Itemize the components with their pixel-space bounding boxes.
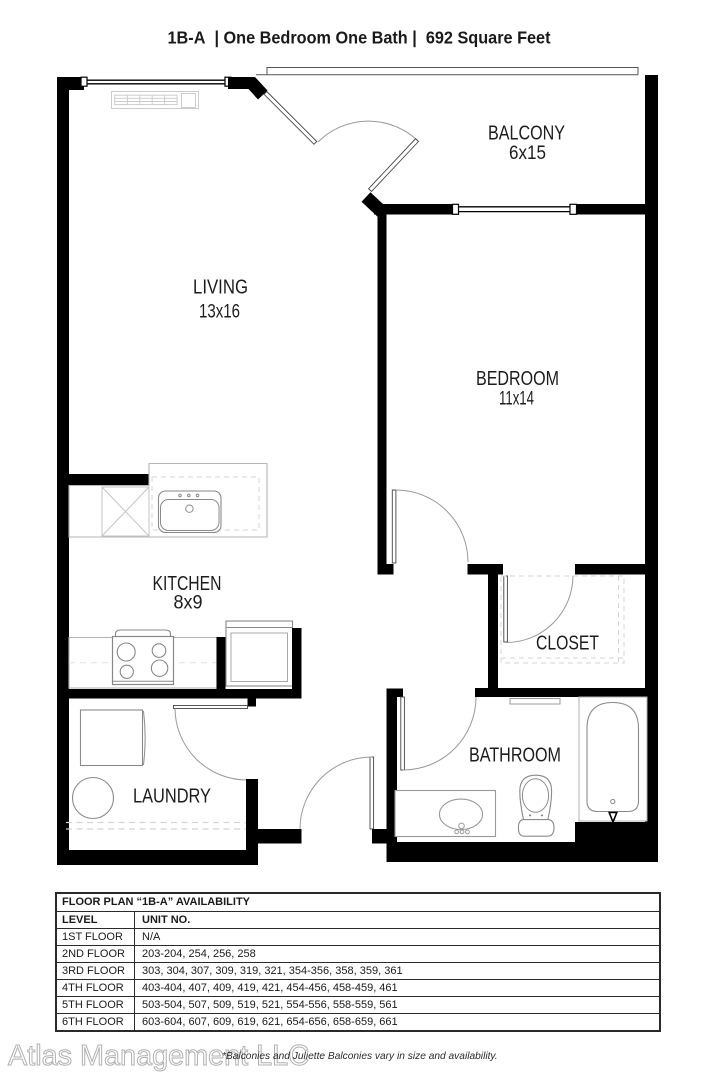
- svg-text:8x9: 8x9: [174, 592, 203, 614]
- svg-text:13x16: 13x16: [199, 301, 240, 323]
- svg-text:11x14: 11x14: [499, 388, 534, 410]
- svg-text:LAUNDRY: LAUNDRY: [133, 785, 211, 808]
- svg-text:CLOSET: CLOSET: [536, 632, 599, 655]
- svg-text:BATHROOM: BATHROOM: [469, 744, 561, 767]
- svg-text:LIVING: LIVING: [193, 276, 248, 299]
- svg-text:1B-A | One Bedroom One Bath |: 1B-A | One Bedroom One Bath | 692 Square…: [168, 28, 551, 48]
- svg-text:6x15: 6x15: [509, 142, 546, 164]
